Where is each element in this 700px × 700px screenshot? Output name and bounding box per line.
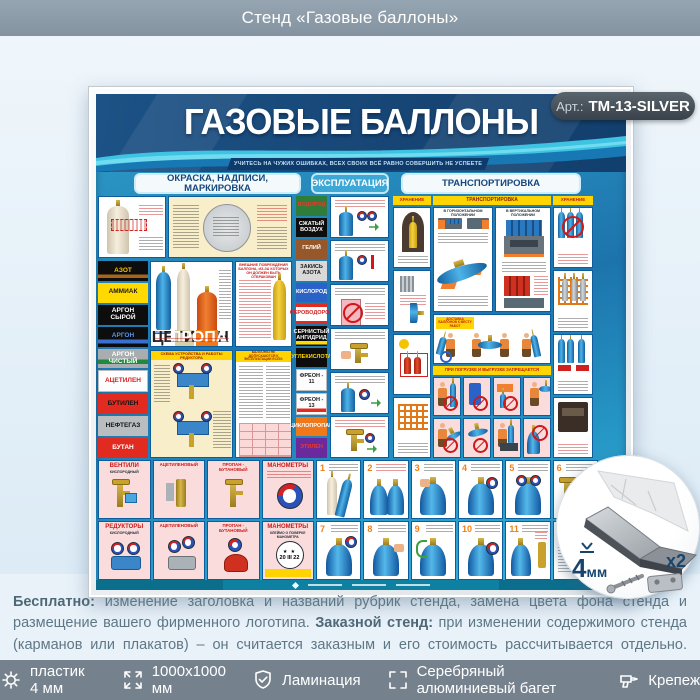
caption-lines <box>558 444 588 454</box>
cylinder-illustration <box>539 386 551 392</box>
text-lines <box>438 296 488 308</box>
panel-reducer-acetylene: АЦЕТИЛЕНОВЫЙ <box>153 521 206 580</box>
text-lines <box>329 464 358 473</box>
gas-label-text: АЗОТ <box>114 268 132 275</box>
delivery-caption: ДОСТАВКА БАЛЛОНОВ К МЕСТУ РАБОТ <box>436 317 474 329</box>
caption-lines <box>558 318 588 328</box>
caption-lines <box>558 254 588 264</box>
prohibition-sign <box>473 438 488 453</box>
panel-title: СХЕМА УСТРОЙСТВА И РАБОТЫ РЕДУКТОРА <box>151 351 232 360</box>
gas-color-labels-column-2: ВОДОРОД СЖАТЫЙ ВОЗДУХ ГЕЛИЙ ЗАКИСЬ АЗОТА… <box>296 196 327 458</box>
diagram-stem <box>189 433 194 447</box>
text-lines <box>502 262 546 272</box>
article-prefix: Арт.: <box>556 99 583 114</box>
motto-text: УЧИТЕСЬ НА ЧУЖИХ ОШИБКАХ, ВСЕХ СВОИХ ВСЁ… <box>234 161 482 167</box>
green-arrow-icon <box>369 223 379 231</box>
description-bold: Заказной стенд: <box>315 615 433 631</box>
panel-valve-acetylene: АЦЕТИЛЕНОВЫЙ <box>153 460 206 519</box>
reducer-illustration <box>168 556 196 570</box>
annotation-lines <box>154 365 170 403</box>
gauge-icon <box>173 363 184 374</box>
truck-cab <box>482 220 489 229</box>
step-number: 11 <box>509 524 519 534</box>
text-lines <box>426 525 453 534</box>
poster-footer-strip <box>96 580 626 590</box>
storage-panel-crate <box>553 270 593 331</box>
gas-label-text: ЭТИЛЕН <box>300 445 323 451</box>
truck-rear-plate <box>510 240 538 247</box>
step-panel: 3 <box>411 460 456 519</box>
prohibition-sign <box>473 396 488 411</box>
fastener-drill-icon <box>618 669 640 691</box>
stamp-note <box>265 569 312 577</box>
gas-label: БУТИЛЕН <box>98 394 148 414</box>
panel-title: АЦЕТИЛЕНОВЫЙ <box>154 524 205 529</box>
text-lines <box>335 288 385 296</box>
gauge-icon <box>486 477 498 489</box>
cylinder-illustration <box>414 357 421 374</box>
annotation-lines <box>257 227 287 249</box>
spec-dimensions: 1000x1000 мм <box>122 663 226 697</box>
tab-label: ОКРАСКА, НАДПИСИ, МАРКИРОВКА <box>136 174 299 193</box>
gas-label-text: СЕРОВОДОРОД <box>290 311 333 317</box>
prohibition-cell <box>433 377 461 416</box>
panel-cylinder-types: КИСЛОРОД АЦЕТИЛЕН ПРОПАН-БУТАН <box>150 261 233 347</box>
gas-label: ЦИКЛОПРОПАН <box>296 417 327 437</box>
prohibition-sign <box>443 438 458 453</box>
panel-title: МАНОМЕТРЫ <box>263 524 314 531</box>
step-number: 1 <box>320 463 325 473</box>
gauge-icon <box>486 542 499 555</box>
tab-okraska-nadpisi-markirovka: ОКРАСКА, НАДПИСИ, МАРКИРОВКА <box>134 173 301 194</box>
reducer-illustration <box>224 554 248 572</box>
gas-label: СЕРОВОДОРОД <box>296 304 327 324</box>
gas-label: ГЕЛИЙ <box>296 239 327 259</box>
step-number: 8 <box>367 524 372 534</box>
gas-label: АЗОТ <box>98 261 148 281</box>
valve-illustration <box>355 347 361 363</box>
panel-subtitle: КИСЛОРОДНЫЙ <box>99 532 150 536</box>
caption-lines <box>155 338 229 343</box>
valve-illustration <box>117 483 123 507</box>
gas-label: ФРЕОН - 11 <box>296 369 327 391</box>
count-label: x2 <box>666 551 686 571</box>
hand-illustration <box>394 544 404 552</box>
truck-cargo-cylinders <box>447 219 461 224</box>
cart-illustration <box>500 443 518 451</box>
gauge-icon <box>168 540 181 553</box>
cylinder-illustration <box>341 388 355 412</box>
spec-frame: Серебряный алюминиевый багет <box>387 663 593 697</box>
annotation-lines <box>139 205 163 217</box>
cylinder-illustration <box>410 303 418 323</box>
panel-valve-propane: ПРОПАН - БУТАНОВЫЙ <box>207 460 260 519</box>
text-lines <box>424 464 453 473</box>
annotation-lines <box>173 205 199 249</box>
panel-title: ВНЕШНИЕ ПОВРЕЖДЕНИЯ БАЛЛОНА, ИЗ-ЗА КОТОР… <box>238 264 289 280</box>
prohibition-cell <box>433 418 461 458</box>
prohibition-cell <box>463 418 491 458</box>
inscription-zone-marker <box>111 219 147 231</box>
cylinder-illustration <box>409 222 417 248</box>
footer-line <box>396 584 430 586</box>
step-panel: 7 <box>316 521 361 580</box>
gauge-icon <box>365 433 375 443</box>
gas-label: НЕФТЕГАЗ <box>98 416 148 436</box>
gauge-icon <box>345 536 357 548</box>
panel-title: ПРОПАН - БУТАНОВЫЙ <box>208 463 259 473</box>
text-lines <box>335 332 385 340</box>
worker-illustration <box>530 382 539 406</box>
prohibition-row-1 <box>433 377 551 416</box>
panel-valves-oxygen: ВЕНТИЛИ КИСЛОРОДНЫЙ <box>98 460 151 519</box>
text-lines <box>438 233 488 245</box>
gas-label: ФРЕОН - 13 <box>296 393 327 415</box>
storage-panel-pallet <box>393 397 431 458</box>
panel-title: В ГОРИЗОНТАЛЬНОМ ПОЛОЖЕНИИ <box>435 210 491 218</box>
green-arrow-icon <box>367 445 377 453</box>
cylinder-illustration <box>515 483 541 515</box>
gas-label-text: БУТАН <box>112 445 134 452</box>
motto-banner: УЧИТЕСЬ НА ЧУЖИХ ОШИБКАХ, ВСЕХ СВОИХ ВСЁ… <box>227 158 489 170</box>
spec-label: Ламинация <box>282 672 361 689</box>
cylinder-illustration <box>578 339 585 363</box>
valve-illustration <box>351 433 357 451</box>
storage-right-column <box>553 207 593 458</box>
panel-title: БАЛЛОНЫ НЕ ДОПУСКАЮТСЯ К ЭКСПЛУАТАЦИИ ЕС… <box>236 351 291 362</box>
cylinder-illustration <box>530 335 541 358</box>
gas-label-text: АРГОН СЫРОЙ <box>99 308 147 322</box>
hand-illustration <box>341 351 351 359</box>
gas-label-text: ФРЕОН - 11 <box>298 374 325 386</box>
exploitation-panel <box>330 416 389 458</box>
exploitation-panel <box>330 240 389 282</box>
product-image-area: ГАЗОВЫЕ БАЛЛОНЫ УЧИТЕСЬ НА ЧУЖИХ ОШИБКАХ… <box>0 36 700 574</box>
exploitation-panel <box>330 372 389 414</box>
spec-lamination: Ламинация <box>252 669 361 691</box>
lamination-shield-icon <box>252 669 274 691</box>
cylinder-illustration <box>558 339 565 363</box>
storage-panel-cylinders-ban <box>553 207 593 268</box>
page-title: Стенд «Газовые баллоны» <box>242 8 459 28</box>
gauge-icon <box>182 536 195 549</box>
panel-transport-horizontal: В ГОРИЗОНТАЛЬНОМ ПОЛОЖЕНИИ <box>433 207 493 312</box>
gas-label-text: НЕФТЕГАЗ <box>106 423 141 430</box>
page-header: Стенд «Газовые баллоны» <box>0 0 700 36</box>
manometer-illustration <box>277 483 303 509</box>
step-number: 9 <box>415 524 420 534</box>
red-tag <box>576 365 589 371</box>
gas-label-text: ВОДОРОД <box>298 203 326 209</box>
prohibition-sign <box>443 396 458 411</box>
text-lines <box>471 464 500 473</box>
stand-frame: ГАЗОВЫЕ БАЛЛОНЫ УЧИТЕСЬ НА ЧУЖИХ ОШИБКАХ… <box>88 86 634 598</box>
gauge-icon <box>367 211 377 221</box>
tab-ekspluatatsiya: ЭКСПЛУАТАЦИЯ <box>311 173 389 194</box>
gas-label: АММИАК <box>98 283 148 303</box>
gauge-icon <box>201 363 212 374</box>
truck-bed <box>504 298 544 308</box>
panel-not-allowed: БАЛЛОНЫ НЕ ДОПУСКАЮТСЯ К ЭКСПЛУАТАЦИИ ЕС… <box>235 350 292 458</box>
oxygen-cylinder-illustration <box>156 272 171 330</box>
frame-corner-illustration: 4мм x2 <box>556 455 700 599</box>
gas-label: АРГОН <box>98 327 148 347</box>
article-code: ТМ-13-SILVER <box>588 98 689 115</box>
tab-label: ЭКСПЛУАТАЦИЯ <box>311 179 388 189</box>
valve-illustration <box>230 483 236 507</box>
annotation-lines <box>139 237 163 251</box>
footer-line <box>352 584 386 586</box>
hand-illustration <box>420 479 430 487</box>
panel-title: В ВЕРТИКАЛЬНОМ ПОЛОЖЕНИИ <box>497 210 549 218</box>
storage-panel-cabinet <box>553 397 593 458</box>
panel-reducer-scheme: СХЕМА УСТРОЙСТВА И РАБОТЫ РЕДУКТОРА <box>150 350 233 458</box>
truck-cab <box>438 220 445 229</box>
pallet-illustration <box>398 404 428 430</box>
prohibition-cell <box>523 418 551 458</box>
storage-left-header: ХРАНЕНИЕ <box>393 196 431 205</box>
annotation-lines <box>219 270 231 320</box>
radiator-illustration <box>400 276 414 292</box>
text-lines <box>331 525 358 534</box>
gas-label: АЦЕТИЛЕН <box>98 370 148 392</box>
truck-bumper <box>504 254 544 257</box>
prohibition-cell <box>463 377 491 416</box>
text-lines <box>335 376 385 384</box>
text-lines <box>239 366 263 418</box>
verification-stamp: ★ ★ 20 III 22 <box>276 541 304 569</box>
cylinder-illustration <box>571 279 577 301</box>
warning-lines <box>535 532 547 540</box>
step-panel: 10 <box>458 521 503 580</box>
gauge-icon <box>201 411 212 422</box>
gas-label: ЭТИЛЕН <box>296 438 327 458</box>
spec-label: Серебряный алюминиевый багет <box>417 663 593 697</box>
stamp-date: 20 III 22 <box>280 555 300 561</box>
text-lines <box>475 525 500 534</box>
storage-right-header: ХРАНЕНИЕ <box>553 196 593 205</box>
gas-label-text: ФРЕОН - 13 <box>298 398 325 410</box>
propane-cylinder-illustration <box>197 292 217 332</box>
transport-header: ТРАНСПОРТИРОВКА <box>433 196 551 205</box>
gas-label-text: КИСЛОРОД <box>296 290 327 296</box>
prohibition-cell <box>493 418 521 458</box>
exploitation-panel <box>330 328 389 370</box>
valve-illustration <box>176 479 186 507</box>
gas-label-text: АРГОН ЧИСТЫЙ <box>99 352 147 366</box>
pressure-table <box>239 423 292 457</box>
acetylene-cylinder-illustration <box>177 269 190 333</box>
prohibition-cell <box>493 377 521 416</box>
spec-label: 1000x1000 мм <box>152 663 226 697</box>
panel-subtitle: КИСЛОРОДНЫЙ <box>99 471 150 475</box>
cabinet-shelf <box>562 408 584 416</box>
gas-label: УГЛЕКИСЛОТА <box>296 348 327 368</box>
caption-lines <box>398 443 428 453</box>
gas-label: СЕРНИСТЫЙ АНГИДРИД <box>296 326 327 346</box>
gauge-icon <box>111 542 124 555</box>
truck-illustration <box>497 384 513 392</box>
text-lines <box>378 525 405 534</box>
fittings-row-2: РЕДУКТОРЫ КИСЛОРОДНЫЙ АЦЕТИЛЕНОВЫЙ ПРОПА… <box>98 521 314 580</box>
panel-reducers-oxygen: РЕДУКТОРЫ КИСЛОРОДНЫЙ <box>98 521 151 580</box>
gas-label: ЗАКИСЬ АЗОТА <box>296 261 327 281</box>
cylinder-illustration <box>511 544 531 576</box>
spec-label: пластик 4 мм <box>30 663 96 697</box>
description-bold: Бесплатно: <box>13 594 95 610</box>
step-panel: 4 <box>458 460 503 519</box>
storage-panel-sun-protection <box>393 334 431 395</box>
gauge-icon <box>359 389 370 400</box>
standing-cylinders <box>506 220 542 236</box>
gas-label-text: ЦИКЛОПРОПАН <box>290 424 333 430</box>
cylinder-illustration <box>562 279 568 301</box>
panel-reducer-propane: ПРОПАН - БУТАНОВЫЙ <box>207 521 260 580</box>
text-lines <box>335 244 385 252</box>
gas-label: СЖАТЫЙ ВОЗДУХ <box>296 218 327 238</box>
prohibition-sign <box>343 303 363 323</box>
green-arrow-icon <box>416 540 427 558</box>
text-lines <box>335 200 385 208</box>
cylinder-illustration <box>387 485 404 515</box>
panel-title: РЕДУКТОРЫ <box>99 524 150 531</box>
reducer-illustration <box>111 556 141 570</box>
step-number: 5 <box>509 463 514 473</box>
panel-cylinder-inscription <box>98 196 166 258</box>
gas-label: АРГОН ЧИСТЫЙ <box>98 349 148 369</box>
step-number: 10 <box>462 524 472 534</box>
gauge-icon <box>173 411 184 422</box>
cabinet-illustration <box>558 402 588 432</box>
panel-manometers: МАНОМЕТРЫ <box>262 460 315 519</box>
cylinder-illustration <box>339 212 353 236</box>
storage-panel-niche <box>393 207 431 268</box>
stamp-lines <box>213 217 239 237</box>
exploitation-panel <box>330 196 389 238</box>
step-panel: 8 <box>363 521 408 580</box>
panel-stamp-marking <box>168 196 292 258</box>
stand-poster: ГАЗОВЫЕ БАЛЛОНЫ УЧИТЕСЬ НА ЧУЖИХ ОШИБКАХ… <box>96 94 626 590</box>
gas-label: КИСЛОРОД <box>296 283 327 303</box>
cylinder-illustration <box>370 485 387 515</box>
annotation-lines <box>257 205 287 221</box>
cylinder-illustration <box>339 256 353 280</box>
step-number: 2 <box>367 463 372 473</box>
storage-left-column <box>393 207 431 458</box>
prohibition-sign <box>532 425 548 441</box>
step-number: 3 <box>415 463 420 473</box>
step-panel: 5 <box>505 460 550 519</box>
cylinder-illustration <box>335 478 354 517</box>
prohibition-sign <box>562 216 584 238</box>
cylinder-illustration <box>467 427 488 438</box>
panel-cylinder-damage: ВНЕШНИЕ ПОВРЕЖДЕНИЯ БАЛЛОНА, ИЗ-ЗА КОТОР… <box>235 261 292 347</box>
gas-label-text: ЗАКИСЬ АЗОТА <box>297 265 326 277</box>
step-number: 4 <box>462 463 467 473</box>
exploitation-panel <box>330 284 389 326</box>
step-panel: 1 <box>316 460 361 519</box>
gas-label: ВОДОРОД <box>296 196 327 216</box>
article-badge: Арт.: ТМ-13-SILVER <box>551 92 695 120</box>
storage-panel-heater-distance <box>393 270 431 331</box>
wrench-illustration <box>166 483 174 501</box>
gauge-icon <box>357 255 367 265</box>
material-inset: 4мм x2 <box>556 455 700 599</box>
green-arrow-icon <box>371 399 381 407</box>
cylinder-illustration <box>420 483 446 515</box>
fittings-row-1: ВЕНТИЛИ КИСЛОРОДНЫЙ АЦЕТИЛЕНОВЫЙ ПРОПАН … <box>98 460 314 519</box>
text-lines <box>335 420 385 428</box>
storage-panel-tagged <box>553 334 593 395</box>
panel-title: МАНОМЕТРЫ <box>263 463 314 470</box>
panel-manometer-stamp: МАНОМЕТРЫ КЛЕЙМО О ПОВЕРКЕ МАНОМЕТРА ★ ★… <box>262 521 315 580</box>
gas-label: БУТАН <box>98 438 148 458</box>
tab-transportirovka: ТРАНСПОРТИРОВКА <box>401 173 581 194</box>
dimensions-icon <box>122 669 144 691</box>
text-lines <box>365 303 385 321</box>
footer-line <box>308 584 342 586</box>
spec-bar: пластик 4 мм 1000x1000 мм Ламинация Сере… <box>0 660 700 700</box>
torch-illustration <box>538 542 546 568</box>
step-panel: 2 <box>363 460 408 519</box>
step-number: 7 <box>320 524 325 534</box>
yellow-cylinder-illustration <box>273 280 286 340</box>
damage-pointer-lines <box>239 280 271 340</box>
tab-label: ТРАНСПОРТИРОВКА <box>442 179 540 189</box>
prohibition-sign <box>503 396 518 411</box>
warning-lines <box>534 276 548 296</box>
maker-logo <box>291 581 298 588</box>
gas-label-text: ГЕЛИЙ <box>302 246 321 252</box>
gas-label-text: УГЛЕКИСЛОТА <box>291 355 331 361</box>
step-panel: 9 <box>411 521 456 580</box>
cylinder-tag: ПРОПАН-БУТАН <box>196 330 218 335</box>
gauge-icon <box>127 542 140 555</box>
panel-subtitle: КЛЕЙМО О ПОВЕРКЕ МАНОМЕТРА <box>263 532 314 539</box>
poster-footer-logo-area <box>223 580 499 590</box>
caption-lines <box>558 381 588 391</box>
panel-transport-vertical: В ВЕРТИКАЛЬНОМ ПОЛОЖЕНИИ <box>495 207 551 312</box>
gas-label-text: СЕРНИСТЫЙ АНГИДРИД <box>294 330 330 342</box>
caption-lines <box>398 256 428 264</box>
cylinder-illustration <box>580 279 586 301</box>
gas-label: АРГОН СЫРОЙ <box>98 305 148 325</box>
panel-delivery-workers: ДОСТАВКА БАЛЛОНОВ К МЕСТУ РАБОТ <box>433 314 551 364</box>
gas-label-text: АРГОН <box>112 333 134 340</box>
panel-title: ПРОПАН - БУТАНОВЫЙ <box>208 524 259 534</box>
valve-outlet <box>125 493 137 503</box>
text-lines <box>266 366 290 418</box>
text-lines <box>267 471 311 479</box>
prohibition-cell <box>523 377 551 416</box>
gear-icon <box>0 669 22 691</box>
gauge-icon <box>228 538 242 552</box>
cylinder-illustration <box>326 544 352 576</box>
gas-label-text: БУТИЛЕН <box>108 401 139 408</box>
gauge-icon <box>530 475 541 486</box>
loading-ban-header: ПРИ ПОГРУЗКЕ И ВЫГРУЗКЕ ЗАПРЕЩАЕТСЯ <box>433 366 551 375</box>
annotation-lines <box>213 411 231 449</box>
sun-icon <box>399 339 409 349</box>
spec-material: пластик 4 мм <box>0 663 96 697</box>
text-lines <box>518 464 547 473</box>
gas-label-text: АЦЕТИЛЕН <box>105 378 141 385</box>
red-cylinders-group <box>504 276 530 296</box>
cylinder-illustration <box>567 339 574 363</box>
panel-title: АЦЕТИЛЕНОВЫЙ <box>154 463 205 468</box>
text-lines <box>376 464 405 473</box>
diagram-stem <box>189 385 194 399</box>
